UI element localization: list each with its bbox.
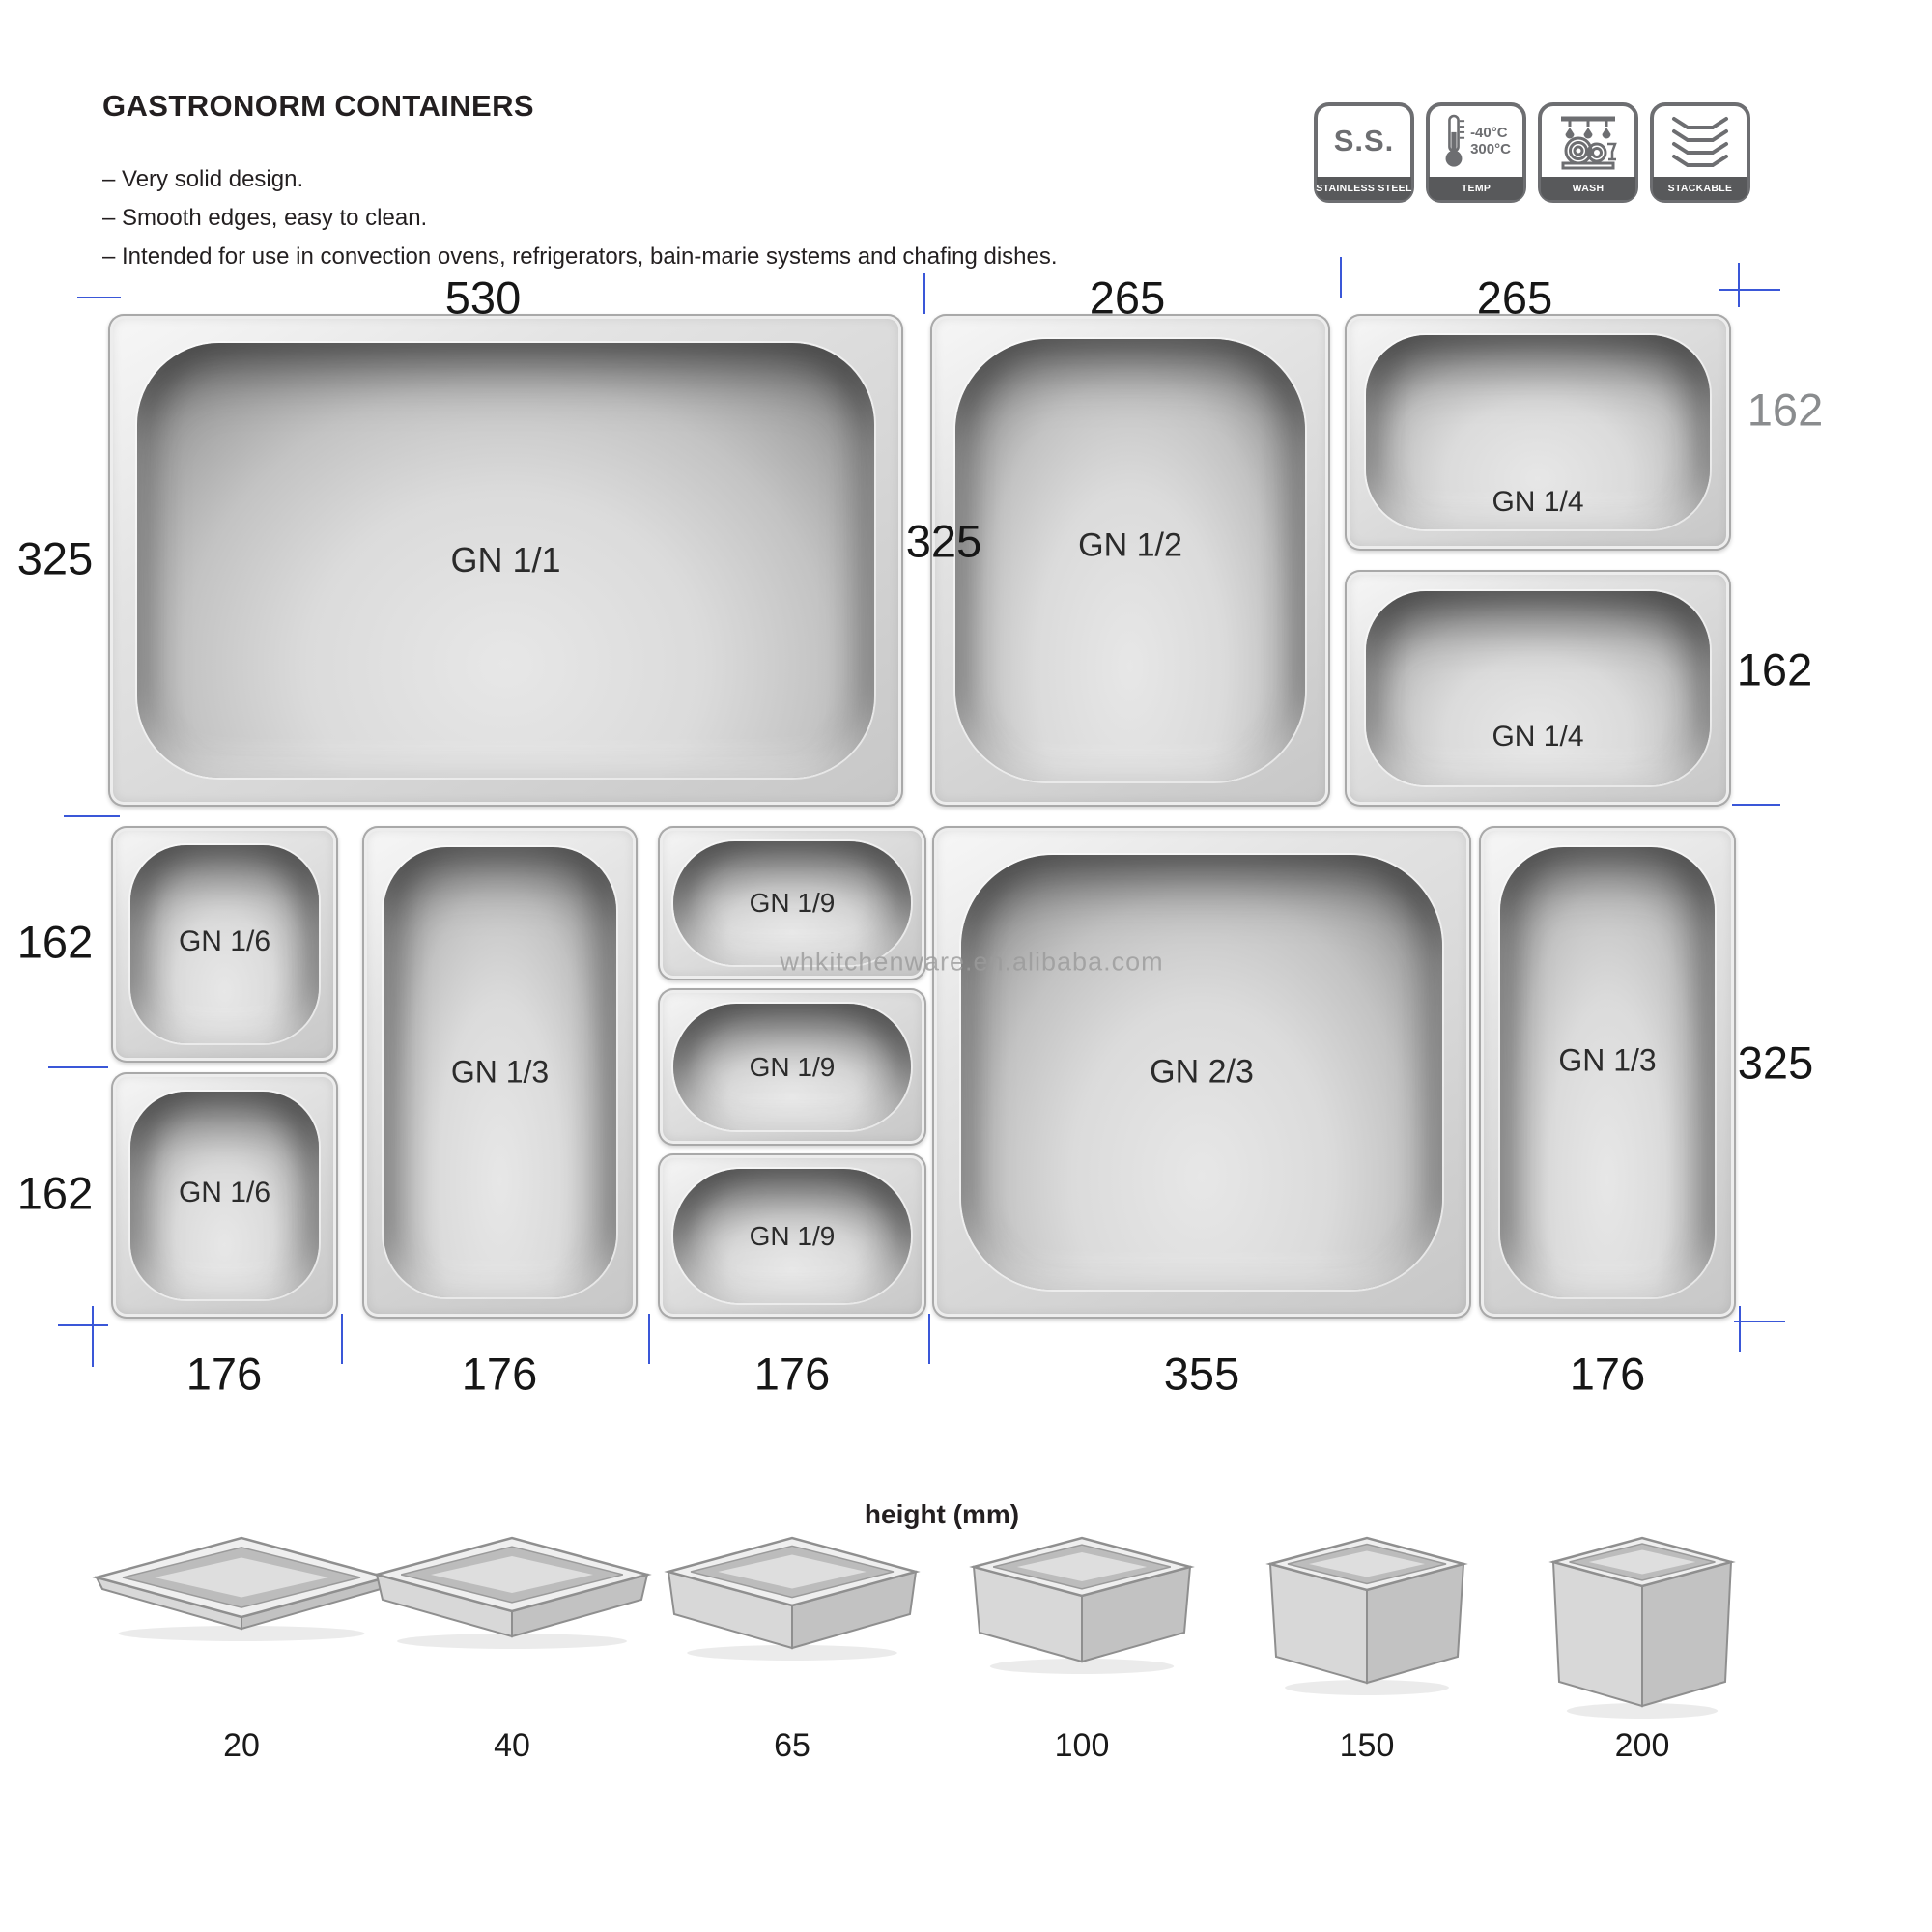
ss-text-icon: S.S. — [1318, 106, 1410, 176]
dishwasher-icon — [1542, 106, 1634, 176]
badge-stackable: STACKABLE — [1650, 102, 1750, 203]
stacked-pans-icon — [1654, 106, 1747, 176]
badge-label: TEMP — [1429, 177, 1523, 200]
ss-text: S.S. — [1334, 124, 1395, 158]
temp-min: -40°C — [1470, 125, 1511, 141]
pan-size-label: GN 2/3 — [1150, 1054, 1254, 1092]
pan-size-label: GN 1/4 — [1492, 486, 1583, 519]
height-value-label: 200 — [1488, 1727, 1797, 1765]
height-value-label: 40 — [357, 1727, 667, 1765]
dimension-label-d325c: 325 — [1738, 1037, 1813, 1090]
dimension-tick-mark — [341, 1314, 343, 1364]
dimension-label-d162c: 162 — [17, 916, 93, 969]
pan-size-label: GN 1/9 — [750, 1052, 836, 1083]
dimension-tick-mark — [1738, 263, 1740, 307]
dimension-label-d265b: 265 — [1477, 271, 1552, 325]
badge-label: STACKABLE — [1653, 177, 1747, 200]
dimension-tick-mark — [648, 1314, 650, 1364]
height-variant-pan — [927, 1517, 1236, 1724]
dimension-label-d176a: 176 — [186, 1348, 262, 1401]
dimension-label-d265a: 265 — [1090, 271, 1165, 325]
height-variant-pan — [638, 1517, 947, 1724]
dimension-tick-mark — [77, 297, 121, 298]
dimension-tick-mark — [92, 1306, 94, 1367]
dimension-tick-mark — [58, 1324, 108, 1326]
bullet-line: – Very solid design. — [102, 166, 303, 193]
page-title: GASTRONORM CONTAINERS — [102, 89, 534, 124]
bullet-line: – Intended for use in convection ovens, … — [102, 243, 1058, 270]
pan-size-label: GN 1/3 — [1558, 1043, 1656, 1079]
dimension-label-d176c: 176 — [754, 1348, 830, 1401]
bullet-line: – Smooth edges, easy to clean. — [102, 205, 427, 232]
dimension-label-d325a: 325 — [17, 532, 93, 585]
dimension-tick-mark — [1732, 804, 1780, 806]
height-value-label: 100 — [927, 1727, 1236, 1765]
badge-label: STAINLESS STEEL — [1317, 177, 1411, 200]
dimension-tick-mark — [923, 273, 925, 314]
dimension-label-d176d: 176 — [1570, 1348, 1645, 1401]
spec-sheet: GASTRONORM CONTAINERS – Very solid desig… — [0, 0, 1932, 1932]
badge-wash: WASH — [1538, 102, 1638, 203]
pan-gn14b — [1345, 570, 1731, 807]
badge-stainless: S.S.STAINLESS STEEL — [1314, 102, 1414, 203]
dimension-label-d162b: 162 — [1737, 643, 1812, 696]
dimension-label-d162d: 162 — [17, 1167, 93, 1220]
pan-size-label: GN 1/6 — [179, 925, 270, 958]
dimension-label-d176b: 176 — [462, 1348, 537, 1401]
dimension-tick-mark — [48, 1066, 108, 1068]
dimension-tick-mark — [1734, 1321, 1785, 1322]
dimension-tick-mark — [928, 1314, 930, 1364]
watermark: whkitchenware.en.alibaba.com — [780, 948, 1163, 978]
height-variant-pan — [1488, 1517, 1797, 1724]
thermometer-icon: -40°C300°C — [1430, 106, 1522, 176]
dimension-label-d325b: 325 — [906, 515, 981, 568]
height-variant-pan — [357, 1517, 667, 1724]
badge-label: WASH — [1541, 177, 1635, 200]
temp-max: 300°C — [1470, 141, 1511, 157]
height-variant-pan — [87, 1517, 396, 1724]
badge-temp: -40°C300°CTEMP — [1426, 102, 1526, 203]
height-variant-pan — [1212, 1517, 1521, 1724]
height-value-label: 150 — [1212, 1727, 1521, 1765]
height-value-label: 65 — [638, 1727, 947, 1765]
pan-size-label: GN 1/3 — [451, 1055, 549, 1091]
pan-size-label: GN 1/6 — [179, 1177, 270, 1209]
dimension-tick-mark — [1719, 289, 1780, 291]
dimension-tick-mark — [1739, 1306, 1741, 1352]
pan-well — [1366, 591, 1710, 785]
dimension-label-d355: 355 — [1164, 1348, 1239, 1401]
pan-size-label: GN 1/9 — [750, 888, 836, 919]
pan-size-label: GN 1/4 — [1492, 721, 1583, 753]
pan-size-label: GN 1/1 — [450, 540, 560, 581]
dimension-tick-mark — [1340, 257, 1342, 298]
pan-size-label: GN 1/2 — [1078, 527, 1182, 565]
temp-range: -40°C300°C — [1470, 125, 1511, 158]
pan-size-label: GN 1/9 — [750, 1221, 836, 1252]
dimension-label-d530: 530 — [445, 271, 521, 325]
height-value-label: 20 — [87, 1727, 396, 1765]
dimension-label-d162a: 162 — [1747, 384, 1823, 437]
dimension-tick-mark — [64, 815, 120, 817]
